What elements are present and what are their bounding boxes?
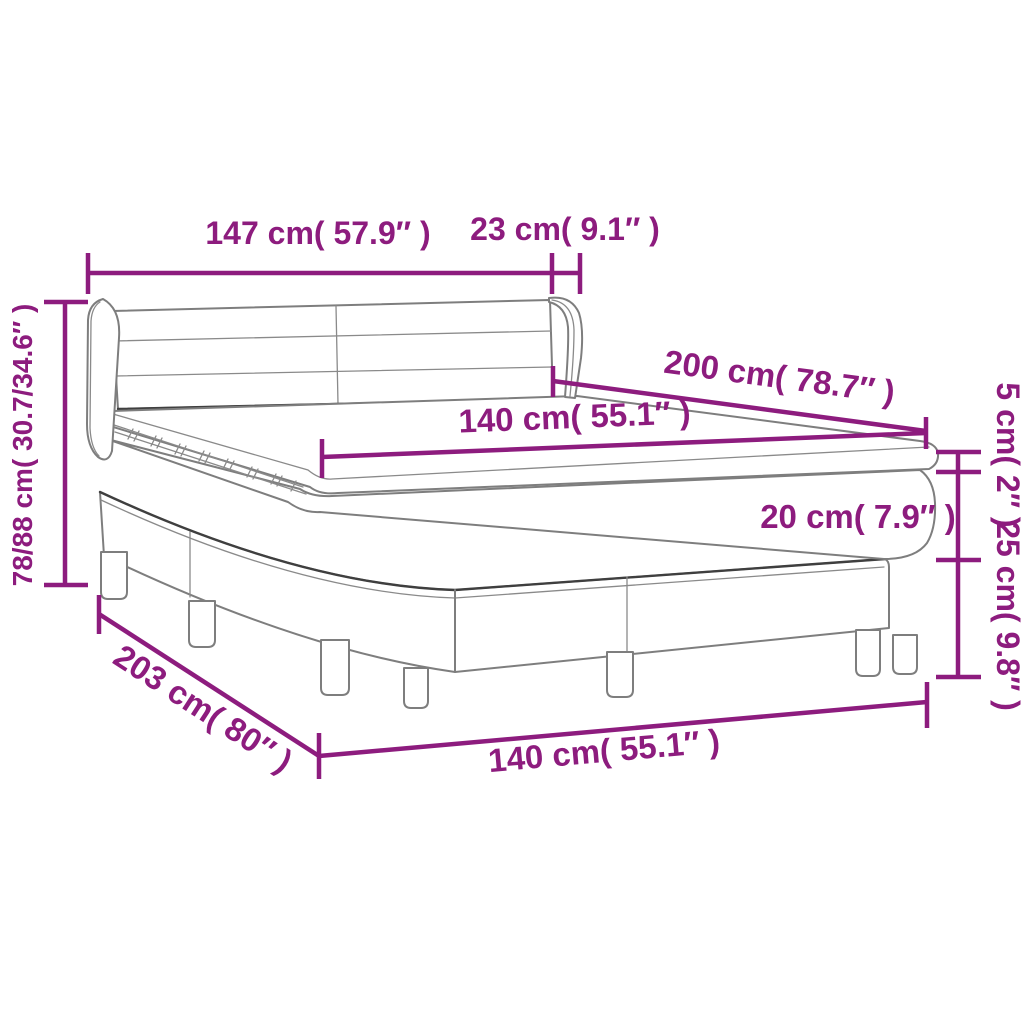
label-base-height: 25 cm( 9.8″ ) <box>990 521 1024 711</box>
bed-leg <box>856 630 880 676</box>
bed-dimension-diagram: 147 cm( 57.9″ ) 23 cm( 9.1″ ) 78/88 cm( … <box>0 0 1024 1024</box>
label-topper-thickness: 5 cm( 2″ ) <box>990 382 1024 527</box>
label-headboard-width: 147 cm( 57.9″ ) <box>205 215 430 251</box>
bed-leg <box>101 552 127 599</box>
bed-leg <box>893 635 917 674</box>
label-headboard-wing-depth: 23 cm( 9.1″ ) <box>470 211 660 247</box>
bed-leg <box>189 601 215 647</box>
label-headboard-height: 78/88 cm( 30.7/34.6″ ) <box>7 304 38 587</box>
bed-leg <box>607 652 633 697</box>
label-mattress-thickness: 20 cm( 7.9″ ) <box>760 498 956 535</box>
label-base-length: 203 cm( 80″ ) <box>107 637 299 780</box>
bed-leg <box>321 640 349 695</box>
bed-leg <box>404 668 428 708</box>
headboard-panel <box>112 300 553 409</box>
diagram-canvas: 147 cm( 57.9″ ) 23 cm( 9.1″ ) 78/88 cm( … <box>0 0 1024 1024</box>
headboard-left-wing <box>87 299 119 459</box>
